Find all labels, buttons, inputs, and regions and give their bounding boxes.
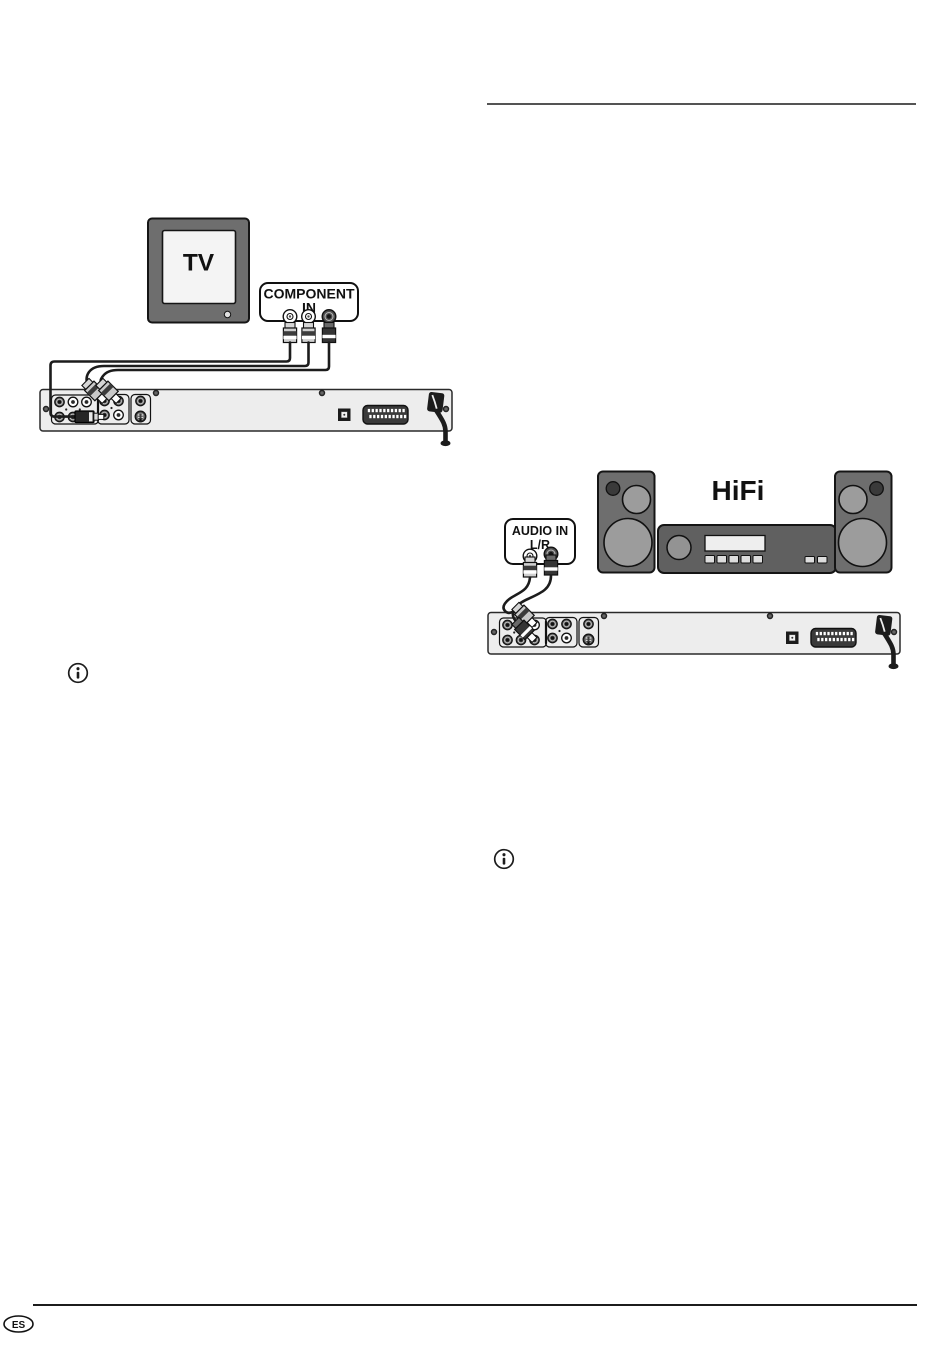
audio-in-label-line1: AUDIO IN <box>512 524 568 538</box>
audio-in-label-box: AUDIO IN L/R <box>505 519 575 564</box>
page-canvas: TV COMPONENT IN <box>0 0 950 1345</box>
hifi-receiver-icon <box>658 525 836 573</box>
info-icon <box>495 850 514 869</box>
language-badge-label: ES <box>12 1320 26 1331</box>
dvd-rear-panel <box>488 613 900 670</box>
tv-component-diagram: TV COMPONENT IN <box>40 219 452 447</box>
manual-page: TV COMPONENT IN <box>0 0 950 1345</box>
hifi-label: HiFi <box>712 475 765 506</box>
speaker-left-icon <box>598 472 655 573</box>
speaker-right-icon <box>835 472 892 573</box>
info-icon <box>69 664 88 683</box>
tv-icon: TV <box>148 219 249 323</box>
language-badge: ES <box>4 1316 33 1332</box>
hifi-audio-diagram: HiFi AUDIO IN L/R <box>488 472 900 670</box>
component-in-jacks <box>283 310 336 343</box>
tv-label: TV <box>183 250 215 277</box>
tv-indicator-dot <box>224 311 230 317</box>
